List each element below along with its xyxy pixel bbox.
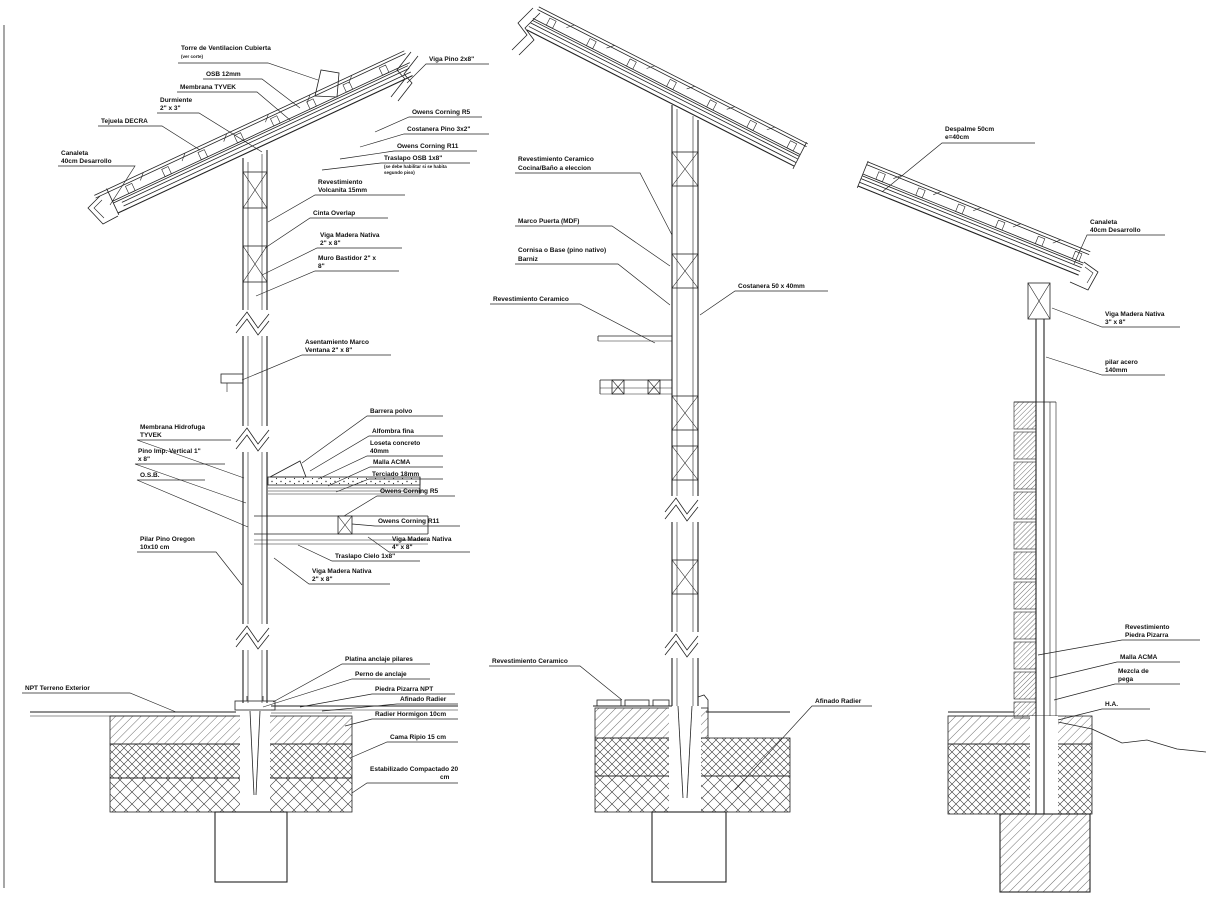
label-traslapo-cielo: Traslapo Cielo 1x8" — [335, 553, 395, 560]
label-traslapo-osb-sub1: (se debe habilitar si se habita — [384, 164, 447, 169]
detail-3-foundation — [948, 712, 1092, 892]
cad-drawing: Torre de Ventilacion Cubierta (ver corte… — [0, 0, 1216, 918]
cad-sheet: Torre de Ventilacion Cubierta (ver corte… — [0, 0, 1216, 918]
footing-pedestal — [215, 812, 287, 882]
label-viga-nativa-c: Viga Madera Nativa — [312, 568, 372, 575]
detail-1-section: Torre de Ventilacion Cubierta (ver corte… — [22, 45, 489, 882]
detail-1-foundation — [30, 696, 458, 882]
label-npt-terreno: NPT Terreno Exterior — [25, 685, 90, 692]
label-osb-12mm: OSB 12mm — [206, 71, 241, 78]
label-piedra-pizarra-npt: Piedra Pizarra NPT — [375, 686, 433, 693]
detail-3-section: Despalme 50cm e=40cm Canaleta 40cm Desar… — [857, 126, 1206, 892]
label-costanera-50x40: Costanera 50 x 40mm — [738, 283, 805, 290]
label-viga-pino: Viga Pino 2x8" — [429, 56, 474, 63]
label-tejuela-decra: Tejuela DECRA — [101, 118, 148, 125]
label-estabilizado: Estabilizado Compactado 20 — [370, 766, 459, 773]
label-durmiente: Durmiente — [160, 97, 193, 104]
detail-2-roof — [526, 6, 809, 170]
label-malla-acma: Malla ACMA — [373, 459, 411, 466]
label-terciado: Terciado 18mm — [372, 471, 419, 478]
label-viga-nativa-b: Viga Madera Nativa — [392, 536, 452, 543]
label-pino-impregnado-size: x 8" — [138, 456, 150, 463]
label-torre-ventilacion-sub: (ver corte) — [181, 54, 204, 59]
label-durmiente-size: 2" x 3" — [160, 105, 181, 112]
footing-pedestal — [1000, 814, 1090, 892]
label-canaleta-3-size: 40cm Desarrollo — [1090, 227, 1141, 234]
label-mezcla-pega-2: pega — [1118, 676, 1134, 683]
label-traslapo-osb: Traslapo OSB 1x8" — [384, 155, 442, 162]
footing-pedestal — [652, 812, 726, 882]
label-canaleta-3: Canaleta — [1090, 219, 1117, 226]
label-pilar-pino-size: 10x10 cm — [140, 544, 169, 551]
anchor-plate-shape — [235, 701, 275, 710]
label-revestimiento-volcanita-size: Volcanita 15mm — [318, 187, 367, 194]
detail-3-gutter-shape — [1070, 262, 1098, 290]
label-asentamiento-marco-size: Ventana 2" x 8" — [305, 347, 352, 354]
label-rev-ceramico-mid: Revestimiento Ceramico — [493, 296, 569, 303]
label-afinado-radier-2: Afinado Radier — [815, 698, 862, 705]
label-rev-piedra: Revestimiento — [1125, 624, 1169, 631]
detail-3-roof — [857, 161, 1090, 278]
label-viga-nativa-3: Viga Madera Nativa — [1105, 311, 1165, 318]
label-canaleta: Canaleta — [61, 150, 88, 157]
label-owens-corning-r11-floor: Owens Corning R11 — [378, 518, 440, 525]
label-marco-puerta: Marco Puerta (MDF) — [518, 218, 579, 225]
detail-1-wall — [221, 150, 274, 703]
label-perno: Perno de anclaje — [355, 671, 407, 678]
label-muro-bastidor-size: 8" — [318, 263, 325, 270]
label-afinado-radier-1: Afinado Radier — [400, 696, 447, 703]
label-alfombra: Alfombra fina — [372, 428, 414, 435]
label-mezcla-pega: Mezcla de — [1118, 668, 1149, 675]
detail-3-beam-connection — [1028, 283, 1050, 319]
label-owens-corning-r5-roof: Owens Corning R5 — [412, 109, 471, 116]
label-pilar-acero-size: 140mm — [1105, 367, 1128, 374]
detail-1-labels: Torre de Ventilacion Cubierta (ver corte… — [25, 45, 474, 781]
ridge-vent-shape — [315, 70, 339, 97]
label-pino-impregnado: Pino Imp. Vertical 1" — [138, 448, 201, 455]
label-rev-ceramico-top: Revestimiento Ceramico — [518, 156, 594, 163]
label-rev-ceramico-bottom: Revestimiento Ceramico — [492, 658, 568, 665]
label-muro-bastidor: Muro Bastidor 2" x — [318, 255, 376, 262]
detail-2-section: Revestimiento Ceramico Cocina/Baño a ele… — [489, 6, 872, 882]
label-cornisa-base: Cornisa o Base (pino nativo) — [518, 247, 606, 254]
label-asentamiento-marco: Asentamiento Marco — [305, 339, 369, 346]
label-loseta-size: 40mm — [370, 448, 389, 455]
label-membrana-tyvek: Membrana TYVEK — [180, 84, 236, 91]
label-rev-piedra-2: Piedra Pizarra — [1125, 632, 1169, 639]
label-cornisa-base-2: Barniz — [518, 256, 539, 263]
label-despalme-size: e=40cm — [945, 134, 969, 141]
label-ha: H.A. — [1105, 701, 1118, 708]
label-loseta: Loseta concreto — [370, 440, 420, 447]
detail-3-labels: Despalme 50cm e=40cm Canaleta 40cm Desar… — [945, 126, 1169, 708]
detail-2-roof-break-icon — [512, 8, 540, 55]
label-viga-nativa-c-size: 2" x 8" — [312, 576, 333, 583]
label-viga-nativa-a-size: 2" x 8" — [320, 240, 341, 247]
label-pilar-acero: pilar acero — [1105, 359, 1138, 366]
label-platina: Platina anclaje pilares — [345, 656, 413, 663]
label-osb: O.S.B. — [140, 472, 160, 479]
label-owens-corning-r11-roof: Owens Corning R11 — [397, 143, 459, 150]
label-estabilizado-unit: cm — [440, 774, 450, 781]
label-membrana-hidrofuga-2: TYVEK — [140, 432, 162, 439]
label-revestimiento-volcanita: Revestimiento — [318, 179, 362, 186]
label-pilar-pino: Pilar Pino Oregon — [140, 536, 195, 543]
label-torre-ventilacion: Torre de Ventilacion Cubierta — [181, 45, 271, 52]
label-cinta-overlap: Cinta Overlap — [313, 210, 355, 217]
window-sill-shape — [221, 374, 243, 383]
detail-2-foundation — [593, 695, 790, 882]
label-barrera-polvo: Barrera polvo — [370, 408, 412, 415]
label-viga-nativa-b-size: 4" x 8" — [392, 544, 413, 551]
detail-1-gutter-shape — [88, 196, 118, 224]
label-viga-nativa-a: Viga Madera Nativa — [320, 232, 380, 239]
label-malla-acma-3: Malla ACMA — [1120, 654, 1158, 661]
label-owens-corning-r5-floor: Owens Corning R5 — [380, 488, 439, 495]
label-cama-ripio: Cama Ripio 15 cm — [390, 734, 446, 741]
label-membrana-hidrofuga: Membrana Hidrofuga — [140, 424, 205, 431]
label-viga-nativa-3-size: 3" x 8" — [1105, 319, 1126, 326]
label-traslapo-osb-sub2: segundo piso) — [384, 170, 415, 175]
label-radier-hormigon: Radier Hormigon 10cm — [375, 711, 446, 718]
label-costanera-pino: Costanera Pino 3x2" — [407, 126, 470, 133]
label-despalme: Despalme 50cm — [945, 126, 994, 133]
label-rev-ceramico-top-2: Cocina/Baño a eleccion — [518, 165, 591, 172]
label-canaleta-size: 40cm Desarrollo — [61, 158, 112, 165]
